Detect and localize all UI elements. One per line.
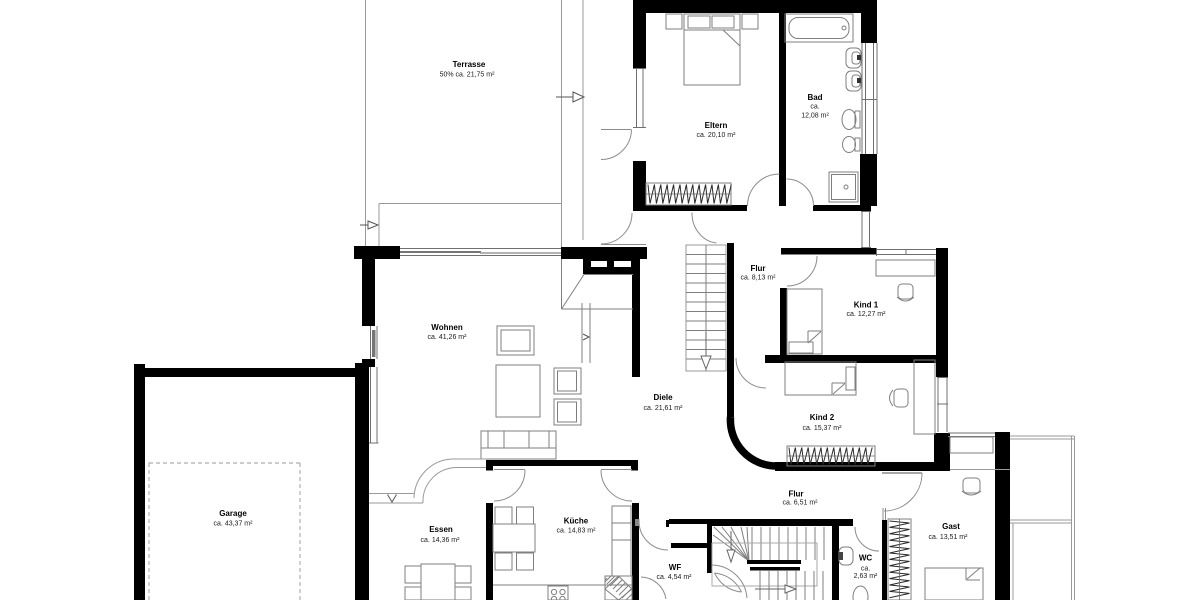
svg-text:Gast: Gast (942, 522, 960, 531)
svg-text:WF: WF (669, 563, 682, 572)
svg-text:ca. 41,26 m²: ca. 41,26 m² (428, 334, 468, 341)
svg-text:Flur: Flur (788, 490, 803, 499)
svg-text:ca.: ca. (810, 104, 819, 111)
svg-text:Essen: Essen (429, 525, 453, 534)
svg-text:ca. 21,61 m²: ca. 21,61 m² (644, 405, 684, 412)
svg-text:ca. 20,10 m²: ca. 20,10 m² (697, 132, 737, 139)
svg-text:Diele: Diele (653, 393, 673, 402)
svg-text:ca. 12,27 m²: ca. 12,27 m² (847, 311, 887, 318)
svg-text:Eltern: Eltern (705, 121, 728, 130)
svg-text:Terrasse: Terrasse (453, 60, 486, 69)
svg-text:WC: WC (859, 554, 873, 563)
svg-text:ca.: ca. (861, 566, 870, 573)
svg-text:ca. 14,83 m²: ca. 14,83 m² (557, 528, 597, 535)
svg-text:ca. 6,51 m²: ca. 6,51 m² (782, 500, 818, 507)
svg-text:2,63 m²: 2,63 m² (854, 573, 878, 580)
svg-text:Flur: Flur (750, 264, 765, 273)
svg-text:50% ca. 21,75 m²: 50% ca. 21,75 m² (440, 72, 496, 79)
svg-text:Kind 1: Kind 1 (854, 301, 879, 310)
svg-text:ca. 8,13 m²: ca. 8,13 m² (740, 275, 776, 282)
svg-text:ca. 4,54 m²: ca. 4,54 m² (656, 574, 692, 581)
svg-text:Küche: Küche (564, 517, 589, 526)
svg-text:ca. 43,37 m²: ca. 43,37 m² (214, 521, 254, 528)
svg-text:Kind 2: Kind 2 (810, 413, 835, 422)
svg-text:ca. 13,51 m²: ca. 13,51 m² (929, 534, 969, 541)
svg-text:12,08 m²: 12,08 m² (801, 113, 829, 120)
svg-text:Wohnen: Wohnen (431, 323, 463, 332)
svg-text:Bad: Bad (807, 93, 822, 102)
svg-text:ca. 14,36 m²: ca. 14,36 m² (421, 537, 461, 544)
svg-text:ca. 15,37 m²: ca. 15,37 m² (803, 425, 843, 432)
svg-text:Garage: Garage (219, 509, 247, 518)
